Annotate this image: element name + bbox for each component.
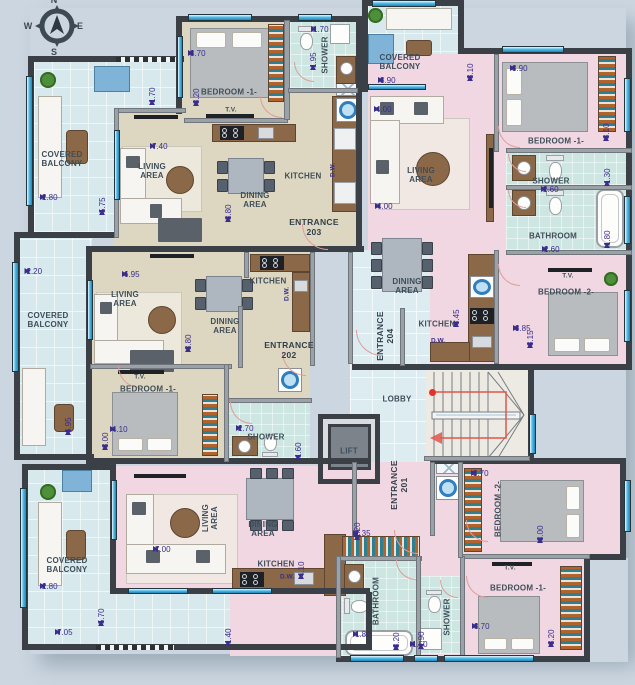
dimension-label: 1.80 xyxy=(602,204,612,248)
room-label: BEDROOM -1- xyxy=(528,138,584,147)
room-label: DINING AREA xyxy=(210,318,239,336)
dimension-label: 1.80 xyxy=(353,629,397,639)
room-label: COVERED BALCONY xyxy=(380,54,421,72)
stair-start-dot xyxy=(429,389,436,396)
annotation-layer: COVERED BALCONYBEDROOM -1-T.V.SHOWERKITC… xyxy=(0,0,635,685)
dimension-label: 1.70 xyxy=(311,24,351,34)
dishwasher-label: D.W. xyxy=(284,287,291,301)
dimension-label: 1.30 xyxy=(602,154,612,186)
room-label: BATHROOM xyxy=(373,577,382,625)
dimension-label: 3.15 xyxy=(525,272,535,348)
room-label: SHOWER xyxy=(247,434,284,443)
dimension-label: 5.70 xyxy=(96,490,106,626)
compass-east-label: E xyxy=(77,21,83,31)
room-label: KITCHEN xyxy=(419,321,456,330)
dimension-label: 3.10 xyxy=(601,67,611,141)
room-label: BATHROOM xyxy=(529,233,577,242)
room-label: BEDROOM -2- xyxy=(495,481,504,537)
compass-north-label: N xyxy=(51,0,58,5)
dimension-label: 1.40 xyxy=(223,610,233,646)
room-label: DINING AREA xyxy=(248,521,277,539)
room-label: BEDROOM -1- xyxy=(201,89,257,98)
compass-south-label: S xyxy=(51,47,57,57)
room-label: KITCHEN xyxy=(258,561,295,570)
floor-plan: N S W E COVERED BALCONYBEDROOM -1-T.V.SH… xyxy=(0,0,635,685)
dimension-label: 7.40 xyxy=(150,141,330,151)
room-label: COVERED BALCONY xyxy=(47,557,88,575)
dimension-label: 8.45 xyxy=(451,121,461,327)
room-label: T.V. xyxy=(504,564,515,571)
dimension-label: 2.70 xyxy=(236,423,300,433)
room-label: BEDROOM -2- xyxy=(538,289,594,298)
entrance-label: ENTRANCE 202 xyxy=(264,341,314,361)
room-label: LIVING AREA xyxy=(138,163,166,181)
room-label: DINING AREA xyxy=(392,278,421,296)
dimension-label: 6.95 xyxy=(63,267,73,435)
dimension-label: 3.80 xyxy=(183,260,193,352)
room-label: LIVING AREA xyxy=(202,504,220,532)
dishwasher-label: D.W. xyxy=(280,574,294,581)
room-label: T.V. xyxy=(562,272,573,279)
room-label: T.V. xyxy=(225,106,236,113)
dishwasher-label: D.W. xyxy=(431,338,445,345)
room-label: BEDROOM -1- xyxy=(120,386,176,395)
dimension-label: 2.35 xyxy=(353,528,411,538)
dimension-label: 7.05 xyxy=(55,627,225,637)
dimension-label: 2.60 xyxy=(541,184,603,194)
dimension-label: 4.10 xyxy=(110,424,210,434)
room-label: T.V. xyxy=(134,373,145,380)
room-label: SHOWER xyxy=(322,36,331,73)
dimension-label: 1.50 xyxy=(410,639,448,649)
compass-west-label: W xyxy=(24,21,33,31)
room-label: LIVING AREA xyxy=(111,291,139,309)
entrance-label: ENTRANCE 203 xyxy=(289,218,339,238)
dimension-label: 3.20 xyxy=(191,26,201,106)
dimension-label: 3.00 xyxy=(535,471,545,543)
room-label: KITCHEN xyxy=(285,173,322,182)
dimension-label: 1.70 xyxy=(147,61,157,105)
room-label: LIFT xyxy=(340,448,358,457)
dimension-label: 3.20 xyxy=(546,569,556,647)
room-label: COVERED BALCONY xyxy=(42,151,83,169)
dimension-label: 1.60 xyxy=(293,420,303,460)
dimension-label: 3.70 xyxy=(471,468,563,478)
dimension-label: 6.95 xyxy=(122,269,288,279)
room-label: BEDROOM -1- xyxy=(490,585,546,594)
entrance-label: ENTRANCE 204 xyxy=(376,311,396,361)
dimension-label: 3.80 xyxy=(223,130,233,222)
dimension-label: 4.10 xyxy=(296,479,306,579)
dimension-label: 2.60 xyxy=(542,244,604,254)
dimension-label: 3.90 xyxy=(378,75,470,85)
room-label: SHOWER xyxy=(444,598,453,635)
dimension-label: 3.00 xyxy=(100,378,110,450)
dishwasher-label: D.W. xyxy=(330,163,337,177)
dimension-label: 4.00 xyxy=(374,104,474,114)
dimension-label: 3.10 xyxy=(465,7,475,81)
dimension-label: 3.85 xyxy=(513,323,607,333)
room-label: LIVING AREA xyxy=(407,167,435,185)
entrance-label: ENTRANCE 201 xyxy=(390,460,410,510)
dimension-label: 3.70 xyxy=(188,48,278,58)
dimension-label: 3.90 xyxy=(510,63,604,73)
dimension-label: 2.80 xyxy=(40,192,110,202)
room-label: LOBBY xyxy=(383,396,412,405)
room-label: DINING AREA xyxy=(240,192,269,210)
